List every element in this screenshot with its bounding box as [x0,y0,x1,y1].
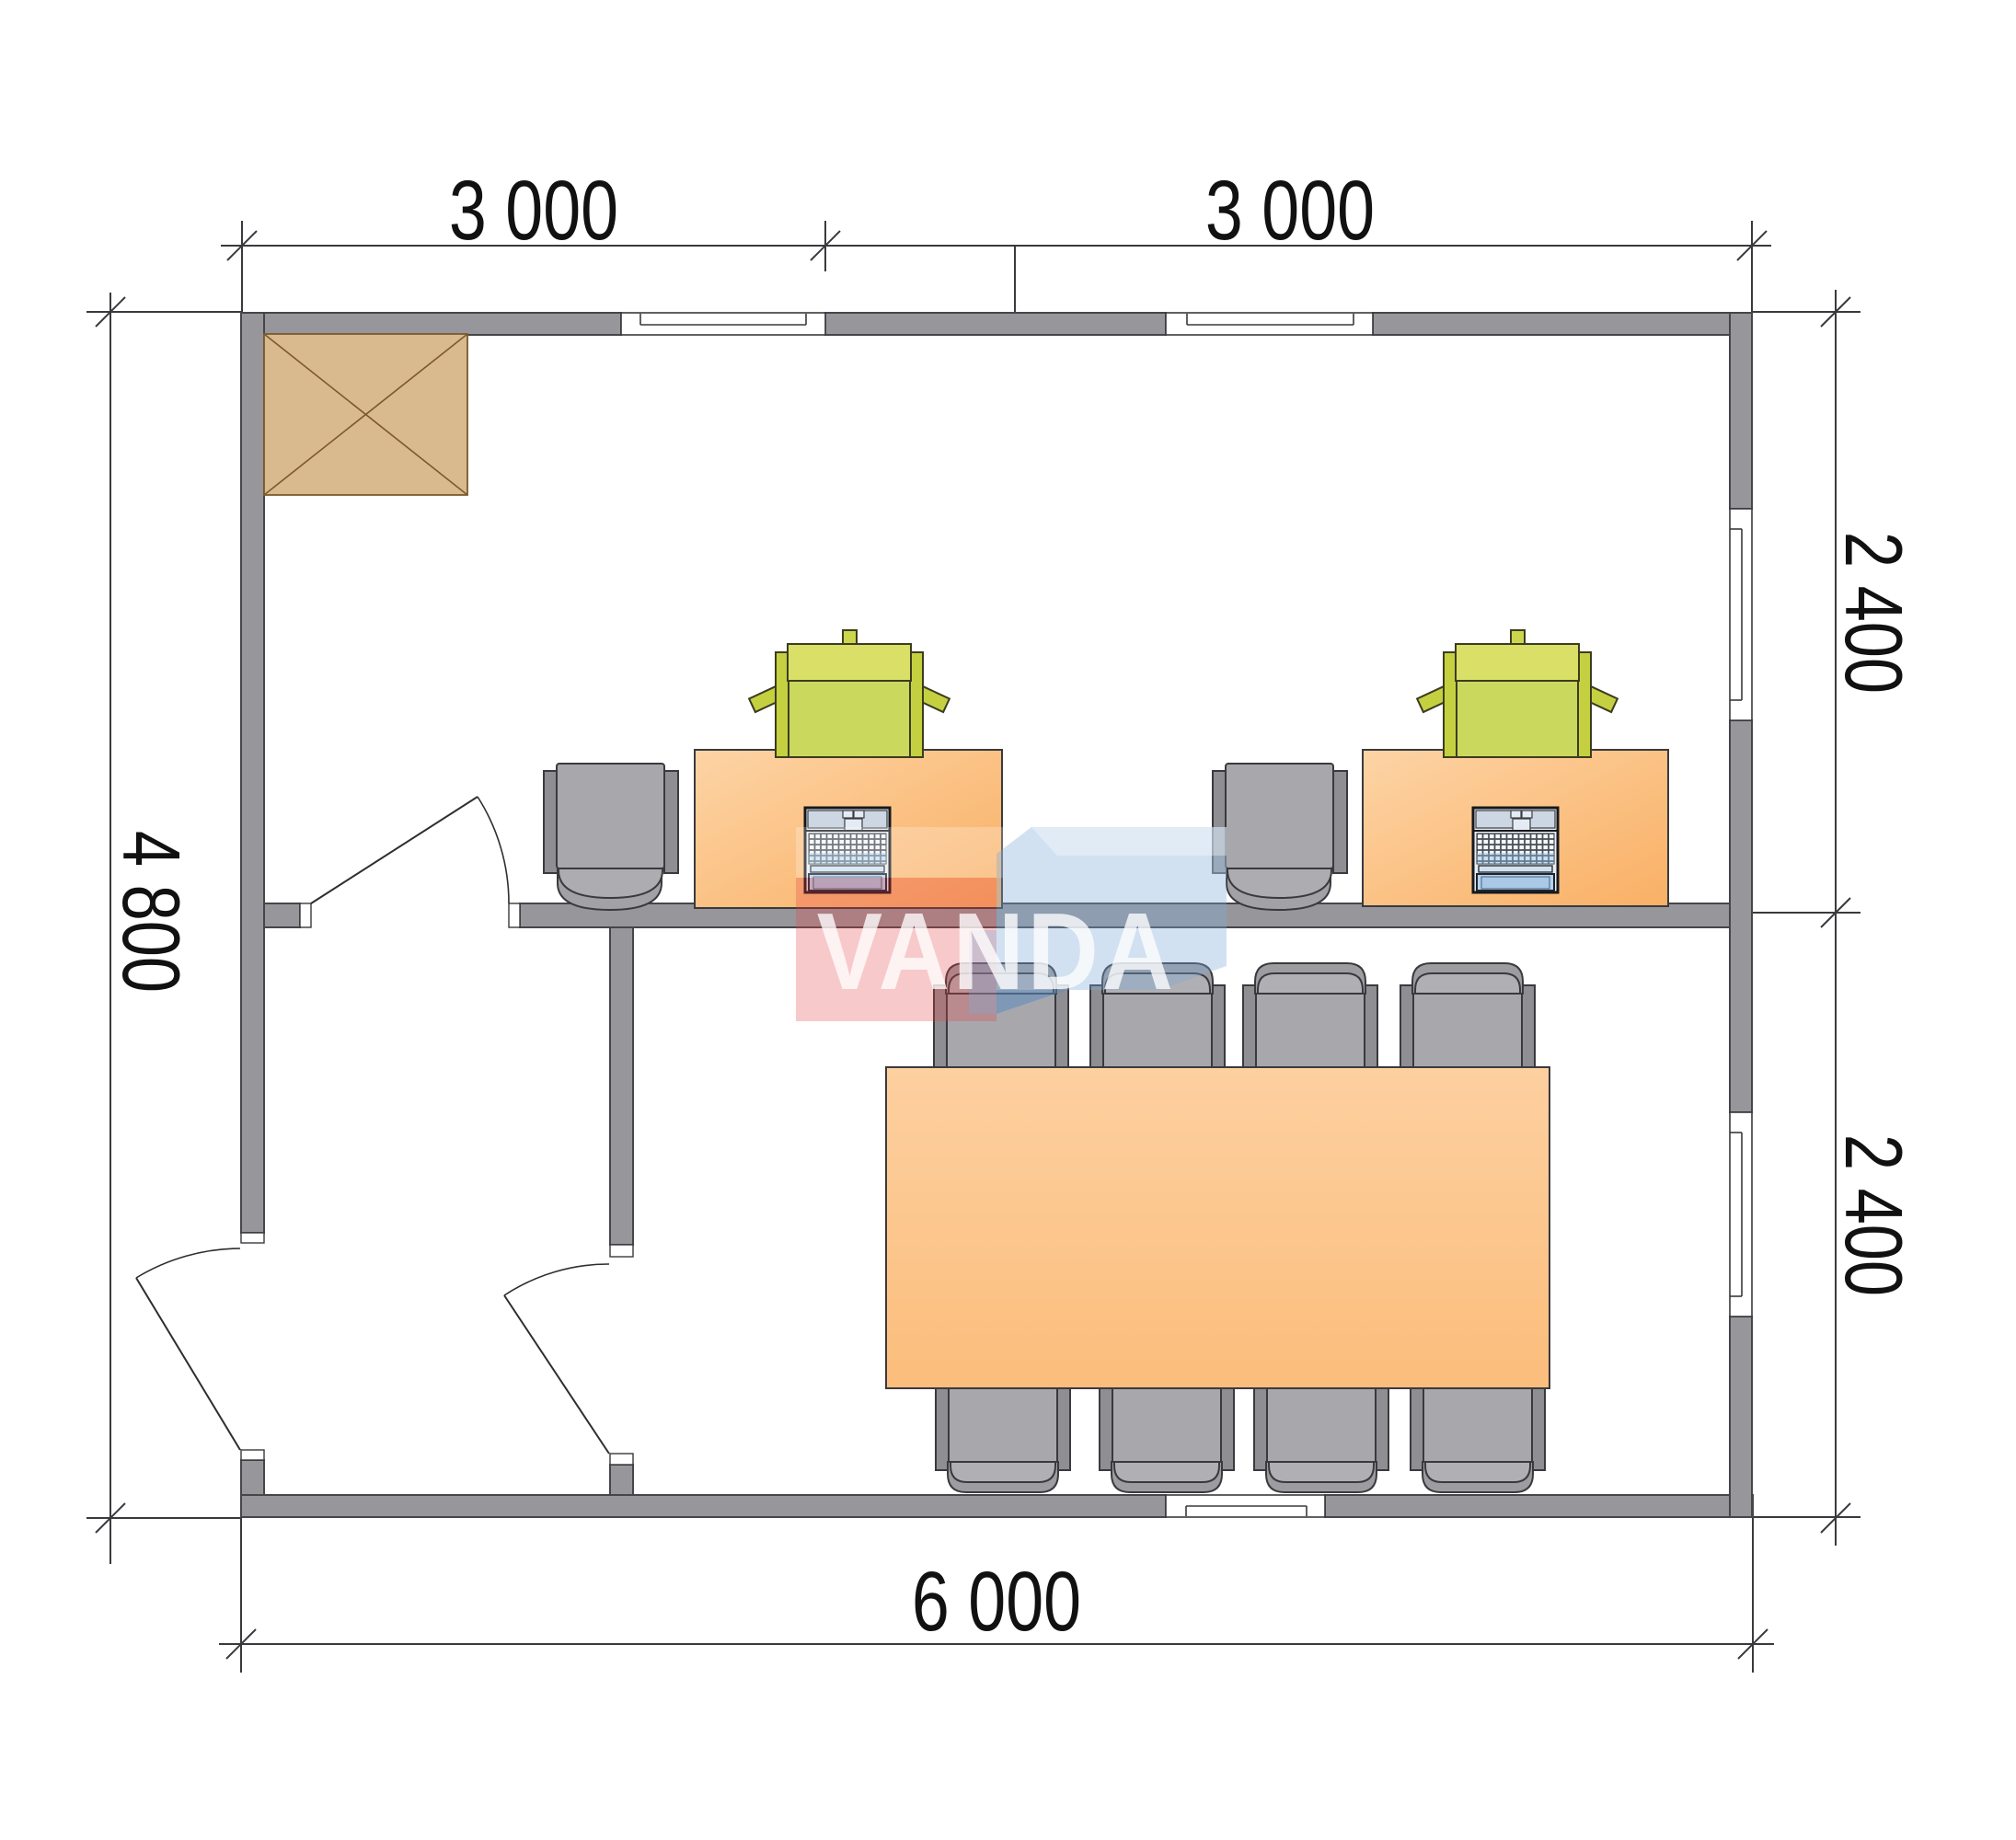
svg-text:2 400: 2 400 [1828,1134,1918,1296]
svg-text:2 400: 2 400 [1828,532,1918,694]
svg-text:4 800: 4 800 [106,831,196,993]
svg-text:6 000: 6 000 [912,1554,1081,1649]
svg-text:VANDA: VANDA [817,891,1177,1012]
svg-text:3 000: 3 000 [449,163,618,258]
svg-text:3 000: 3 000 [1205,163,1375,258]
